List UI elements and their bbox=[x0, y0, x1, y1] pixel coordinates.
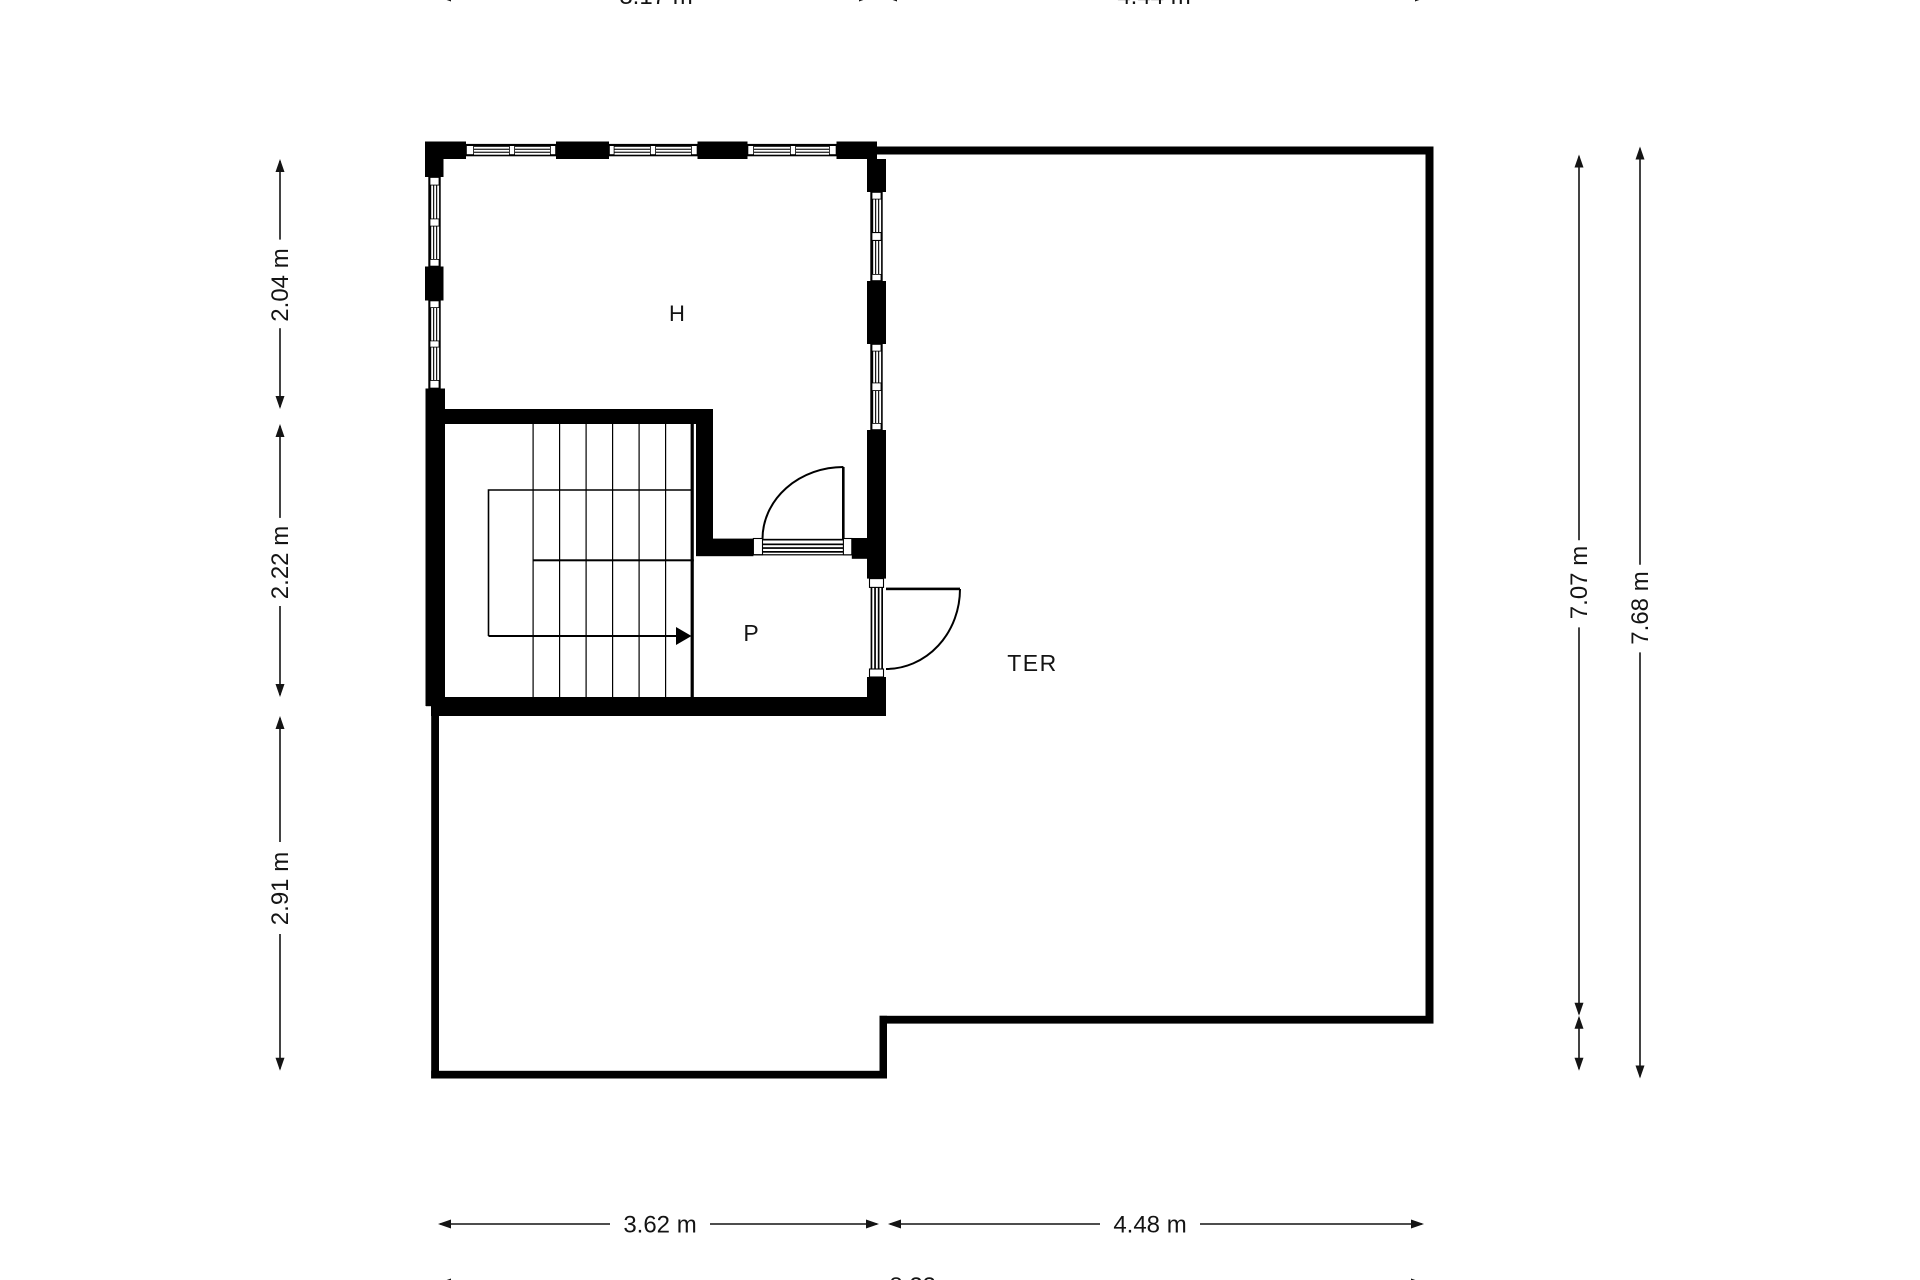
svg-text:3.17 m: 3.17 m bbox=[619, 0, 692, 10]
svg-text:H: H bbox=[669, 301, 685, 326]
svg-text:3.62 m: 3.62 m bbox=[623, 1212, 696, 1239]
svg-text:P: P bbox=[743, 620, 758, 646]
svg-text:TER: TER bbox=[1007, 650, 1058, 676]
svg-text:2.91 m: 2.91 m bbox=[267, 852, 294, 925]
svg-text:8.23 m: 8.23 m bbox=[889, 1273, 962, 1280]
svg-text:2.22 m: 2.22 m bbox=[267, 526, 294, 599]
svg-text:4.44 m: 4.44 m bbox=[1117, 0, 1190, 10]
svg-text:4.48 m: 4.48 m bbox=[1113, 1212, 1186, 1239]
svg-text:7.68 m: 7.68 m bbox=[1627, 571, 1654, 644]
svg-text:7.07 m: 7.07 m bbox=[1566, 546, 1593, 619]
svg-text:2.04 m: 2.04 m bbox=[267, 248, 294, 321]
